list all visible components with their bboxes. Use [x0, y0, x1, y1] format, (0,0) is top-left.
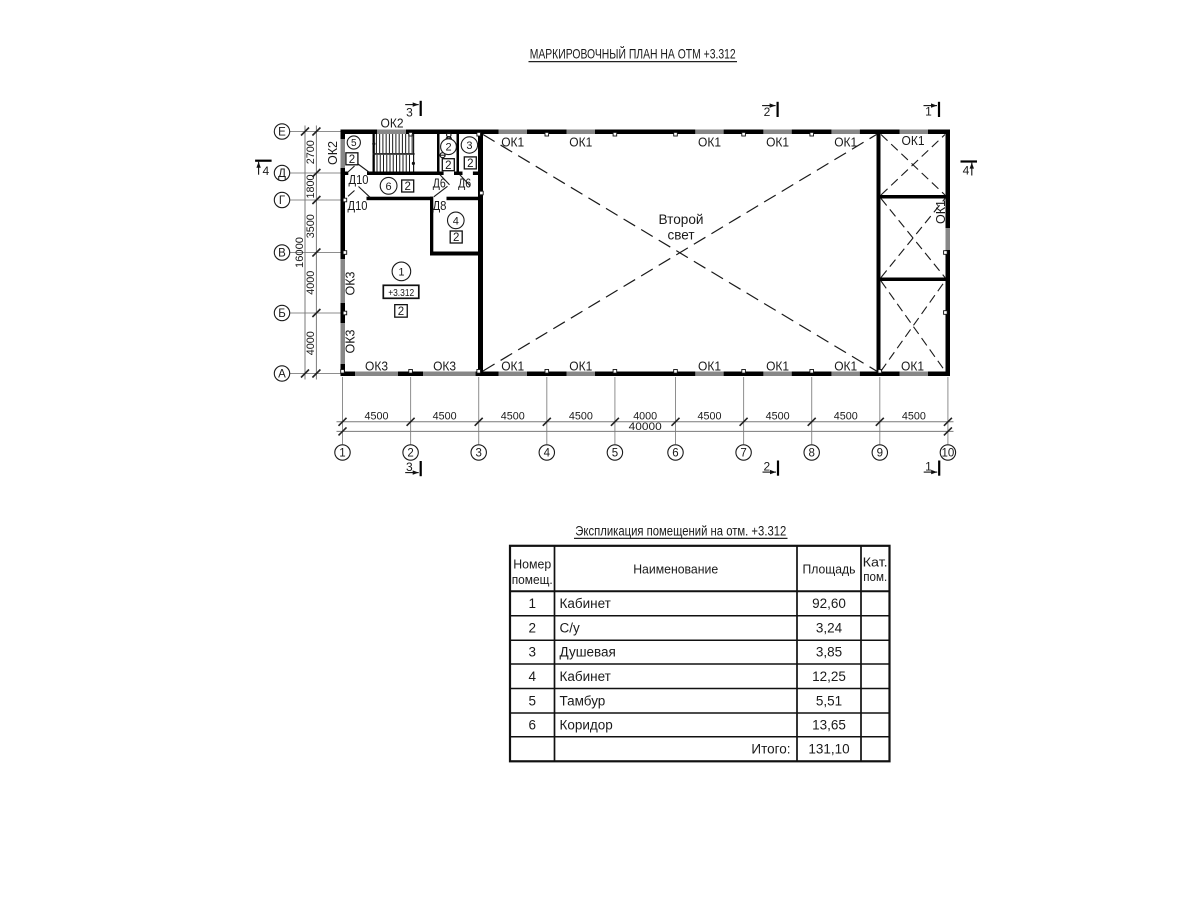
- svg-text:ОК2: ОК2: [381, 116, 404, 131]
- svg-text:6: 6: [386, 181, 392, 193]
- svg-text:5,51: 5,51: [816, 693, 842, 708]
- svg-text:ОК1: ОК1: [834, 134, 857, 149]
- svg-text:92,60: 92,60: [812, 596, 846, 611]
- svg-text:С/у: С/у: [560, 621, 581, 636]
- svg-text:ОК1: ОК1: [766, 359, 789, 374]
- svg-text:3,85: 3,85: [816, 645, 842, 660]
- svg-text:4500: 4500: [902, 410, 926, 422]
- svg-text:5: 5: [612, 448, 618, 460]
- svg-text:ОК3: ОК3: [365, 359, 388, 374]
- svg-text:свет: свет: [668, 227, 695, 242]
- svg-text:3: 3: [528, 645, 536, 660]
- svg-text:1: 1: [339, 448, 345, 460]
- svg-text:А: А: [278, 369, 286, 381]
- svg-text:2700: 2700: [305, 140, 317, 164]
- svg-text:3: 3: [406, 460, 413, 474]
- svg-text:ОК1: ОК1: [569, 134, 592, 149]
- svg-text:131,10: 131,10: [808, 742, 849, 757]
- svg-text:4500: 4500: [834, 410, 858, 422]
- svg-text:2: 2: [453, 232, 459, 244]
- svg-text:Б: Б: [278, 308, 286, 320]
- svg-text:2: 2: [404, 181, 410, 193]
- svg-text:8: 8: [808, 448, 814, 460]
- svg-text:ОК3: ОК3: [343, 330, 358, 354]
- svg-text:2: 2: [398, 306, 404, 318]
- svg-text:2: 2: [445, 142, 451, 154]
- svg-text:1800: 1800: [305, 175, 317, 199]
- svg-text:4000: 4000: [305, 331, 317, 355]
- svg-text:ОК2: ОК2: [325, 141, 340, 165]
- svg-text:Номер: Номер: [513, 557, 551, 572]
- svg-text:Кабинет: Кабинет: [560, 596, 611, 611]
- svg-text:6: 6: [528, 718, 536, 733]
- svg-text:4500: 4500: [766, 410, 790, 422]
- svg-text:Г: Г: [279, 195, 286, 207]
- svg-text:ОК1: ОК1: [901, 359, 924, 374]
- svg-text:5: 5: [528, 693, 536, 708]
- svg-text:ОК1: ОК1: [501, 359, 524, 374]
- svg-text:Второй: Второй: [659, 212, 704, 227]
- svg-text:Кат.: Кат.: [863, 555, 888, 570]
- svg-text:пом.: пом.: [863, 569, 887, 584]
- svg-text:10: 10: [942, 448, 955, 460]
- svg-text:4500: 4500: [698, 410, 722, 422]
- svg-text:Д10: Д10: [349, 173, 369, 187]
- svg-text:Площадь: Площадь: [803, 562, 856, 577]
- svg-text:3: 3: [466, 140, 472, 152]
- svg-text:40000: 40000: [629, 421, 662, 433]
- svg-text:ОК3: ОК3: [433, 359, 456, 374]
- svg-text:6: 6: [672, 448, 678, 460]
- svg-text:4500: 4500: [365, 410, 389, 422]
- svg-text:2: 2: [528, 621, 536, 636]
- svg-text:ОК1: ОК1: [902, 133, 925, 148]
- svg-text:1: 1: [398, 266, 404, 278]
- svg-text:5: 5: [351, 138, 357, 149]
- svg-text:ОК1: ОК1: [698, 134, 721, 149]
- svg-text:ОК1: ОК1: [501, 134, 524, 149]
- svg-text:4: 4: [262, 164, 269, 178]
- svg-text:2: 2: [763, 460, 770, 474]
- svg-text:ОК1: ОК1: [933, 200, 948, 224]
- svg-text:Кабинет: Кабинет: [560, 669, 611, 684]
- svg-text:Наименование: Наименование: [633, 562, 718, 577]
- svg-text:1: 1: [925, 105, 932, 119]
- svg-text:Д8: Д8: [433, 199, 447, 213]
- svg-text:ОК1: ОК1: [834, 359, 857, 374]
- svg-text:Д6: Д6: [433, 177, 446, 191]
- svg-text:помещ.: помещ.: [512, 572, 553, 587]
- svg-text:4500: 4500: [501, 410, 525, 422]
- svg-text:1: 1: [925, 460, 932, 474]
- svg-text:2: 2: [764, 105, 771, 119]
- svg-text:13,65: 13,65: [812, 718, 846, 733]
- svg-text:3: 3: [406, 106, 413, 120]
- svg-text:7: 7: [740, 448, 746, 460]
- svg-text:Коридор: Коридор: [560, 718, 613, 733]
- svg-text:4000: 4000: [305, 271, 317, 295]
- svg-text:2: 2: [349, 154, 355, 166]
- svg-text:3: 3: [475, 448, 481, 460]
- svg-text:3,24: 3,24: [816, 621, 843, 636]
- svg-text:ОК3: ОК3: [343, 272, 358, 296]
- svg-text:Д10: Д10: [348, 199, 368, 213]
- svg-text:Д: Д: [278, 168, 286, 180]
- svg-text:4: 4: [453, 215, 459, 227]
- svg-text:1: 1: [528, 596, 536, 611]
- svg-text:2: 2: [407, 448, 413, 460]
- svg-text:4500: 4500: [433, 410, 457, 422]
- svg-text:МАРКИРОВОЧНЫЙ ПЛАН НА ОТМ +3.3: МАРКИРОВОЧНЫЙ ПЛАН НА ОТМ +3.312: [530, 45, 736, 62]
- svg-text:4: 4: [963, 164, 970, 178]
- svg-text:Е: Е: [278, 127, 286, 139]
- svg-text:9: 9: [877, 448, 883, 460]
- svg-text:4500: 4500: [569, 410, 593, 422]
- svg-text:ОК1: ОК1: [766, 134, 789, 149]
- svg-text:Д6: Д6: [458, 177, 471, 191]
- svg-text:4: 4: [544, 448, 551, 460]
- svg-text:В: В: [278, 248, 286, 260]
- svg-text:ОК1: ОК1: [698, 359, 721, 374]
- svg-text:2: 2: [445, 160, 451, 172]
- svg-text:12,25: 12,25: [812, 669, 846, 684]
- svg-text:3500: 3500: [305, 214, 317, 238]
- svg-text:Итого:: Итого:: [751, 742, 790, 757]
- svg-text:ОК1: ОК1: [569, 359, 592, 374]
- svg-text:16000: 16000: [294, 237, 306, 268]
- svg-text:2: 2: [467, 158, 473, 170]
- svg-text:+3.312: +3.312: [388, 288, 414, 299]
- svg-text:Тамбур: Тамбур: [560, 693, 606, 708]
- svg-text:4: 4: [528, 669, 536, 684]
- svg-text:Душевая: Душевая: [560, 645, 616, 660]
- svg-text:Экспликация помещений на отм.: Экспликация помещений на отм. +3.312: [575, 523, 786, 538]
